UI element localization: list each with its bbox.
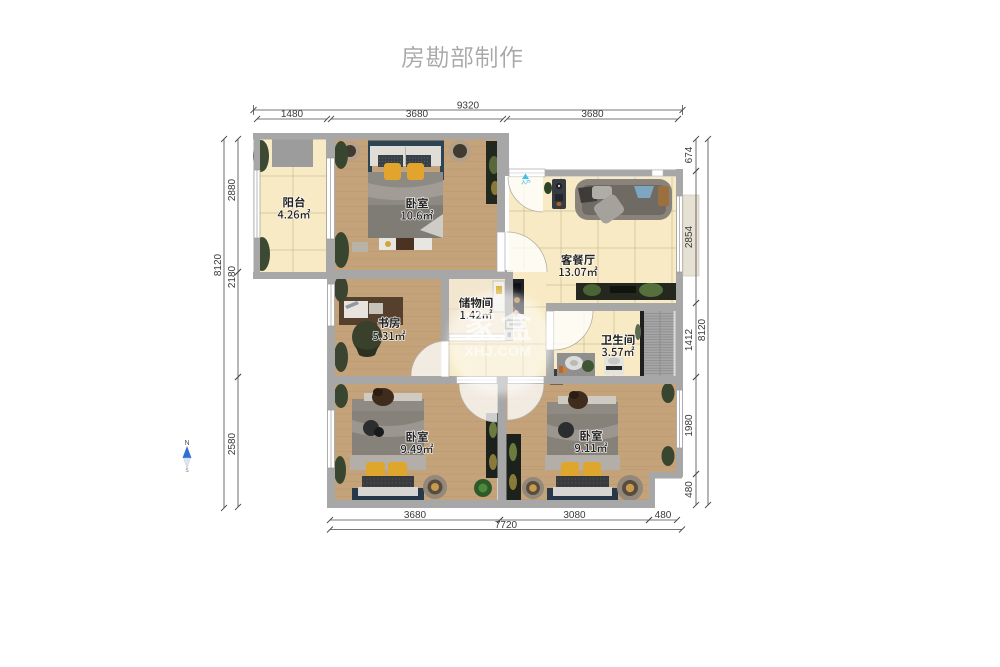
svg-text:XHJ.COM: XHJ.COM xyxy=(464,343,531,359)
svg-text:2180: 2180 xyxy=(227,265,238,288)
svg-text:1480: 1480 xyxy=(281,109,304,120)
svg-text:7720: 7720 xyxy=(495,520,518,531)
svg-text:3680: 3680 xyxy=(406,109,429,120)
svg-text:8120: 8120 xyxy=(213,253,224,276)
svg-text:3080: 3080 xyxy=(563,510,586,521)
svg-text:2880: 2880 xyxy=(227,178,238,201)
svg-text:8120: 8120 xyxy=(697,318,708,341)
svg-text:1412: 1412 xyxy=(684,328,695,351)
svg-text:9320: 9320 xyxy=(457,101,480,112)
svg-text:3680: 3680 xyxy=(404,510,427,521)
svg-text:480: 480 xyxy=(655,510,672,521)
svg-text:3680: 3680 xyxy=(581,109,604,120)
svg-text:480: 480 xyxy=(684,481,695,498)
svg-text:1980: 1980 xyxy=(684,414,695,437)
svg-text:2854: 2854 xyxy=(684,225,695,248)
svg-text:2580: 2580 xyxy=(227,432,238,455)
svg-text:674: 674 xyxy=(684,146,695,163)
svg-text:N: N xyxy=(184,440,189,447)
